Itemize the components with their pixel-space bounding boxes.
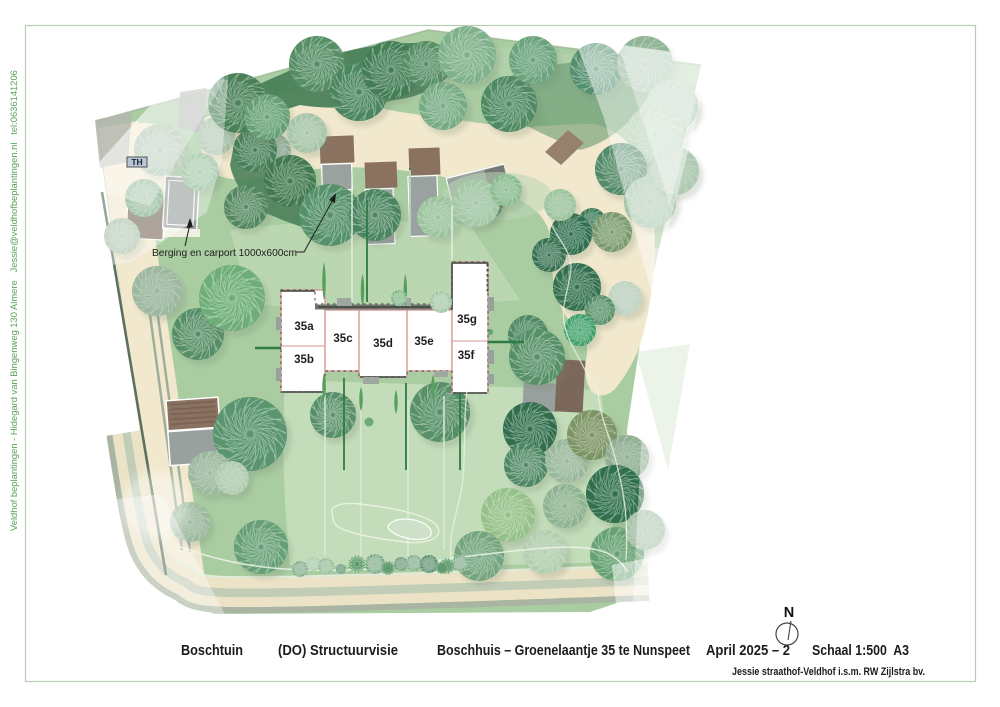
- svg-text:N: N: [784, 605, 794, 621]
- svg-text:35b: 35b: [294, 354, 314, 366]
- svg-text:35d: 35d: [373, 338, 393, 350]
- svg-text:April 2025 – 2: April 2025 – 2: [706, 643, 790, 659]
- svg-text:Boschtuin: Boschtuin: [181, 643, 243, 659]
- svg-text:Boschhuis – Groenelaantje 35 t: Boschhuis – Groenelaantje 35 te Nunspeet: [437, 643, 690, 659]
- svg-text:35g: 35g: [457, 314, 477, 326]
- svg-text:Berging en carport 1000x600cm: Berging en carport 1000x600cm: [152, 248, 297, 259]
- svg-text:Jessie straathof-Veldhof i.s.m: Jessie straathof-Veldhof i.s.m. RW Zijls…: [732, 666, 925, 678]
- svg-text:35e: 35e: [414, 336, 433, 348]
- svg-text:35c: 35c: [333, 333, 353, 345]
- svg-text:Schaal 1:500 A3: Schaal 1:500 A3: [812, 643, 909, 659]
- svg-text:Veldhof beplantingen - Hidegar: Veldhof beplantingen - Hidegard van Bing…: [8, 70, 19, 531]
- svg-text:(DO) Structuurvisie: (DO) Structuurvisie: [278, 643, 398, 659]
- svg-text:35a: 35a: [294, 321, 314, 333]
- svg-text:35f: 35f: [458, 350, 475, 362]
- svg-text:TH: TH: [131, 157, 142, 167]
